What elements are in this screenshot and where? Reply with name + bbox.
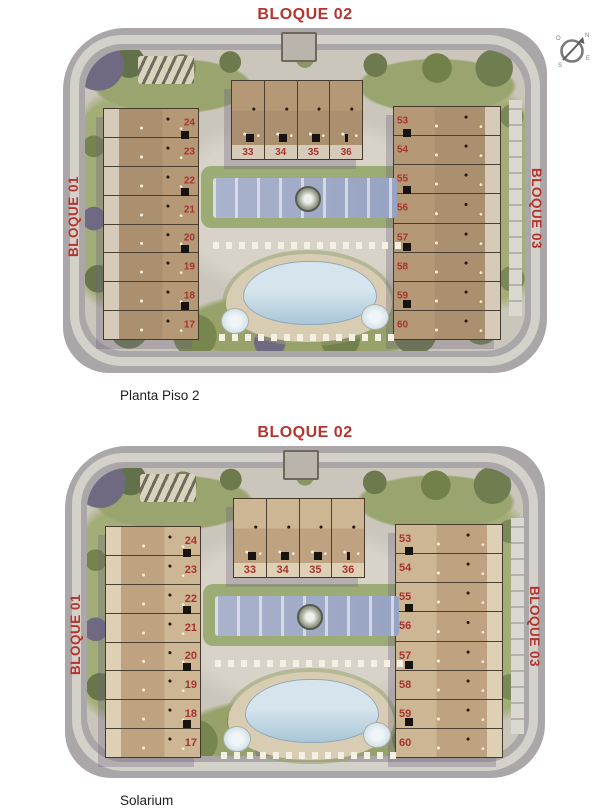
spa-pool	[221, 308, 249, 334]
unit-row: 23	[106, 556, 200, 585]
unit-row: 36	[332, 499, 364, 577]
unit-row: 22	[106, 585, 200, 614]
unit-row: 55	[396, 583, 502, 612]
bloque-03-label: BLOQUE 03	[527, 586, 542, 667]
unit-row: 54	[396, 554, 502, 583]
unit-row: 18	[104, 282, 198, 311]
unit-number: 19	[184, 262, 195, 273]
unit-row: 34	[265, 81, 298, 159]
spa-pool	[363, 722, 391, 748]
unit-number: 60	[397, 319, 408, 330]
unit-row: 57	[394, 224, 500, 253]
bloque-01-label: BLOQUE 01	[66, 176, 81, 257]
unit-row: 17	[104, 311, 198, 339]
unit-row: 56	[394, 194, 500, 223]
pergola	[140, 474, 196, 502]
svg-text:N: N	[585, 33, 589, 39]
unit-row: 59	[394, 282, 500, 311]
unit-row: 22	[104, 167, 198, 196]
unit-row: 58	[396, 671, 502, 700]
entrance-canopy	[283, 450, 319, 480]
unit-row: 19	[104, 253, 198, 282]
unit-number: 34	[275, 147, 286, 158]
unit-number: 56	[397, 203, 408, 214]
site-plan-solarium: BLOQUE 02 BLOQUE 01 BLOQUE 03 24 23 22 2…	[65, 424, 545, 778]
pool	[243, 261, 377, 325]
bloque-02-label: BLOQUE 02	[257, 424, 352, 442]
unit-row: 21	[106, 614, 200, 643]
building-bloque-03: 53 54 55 56 57 58 59 60	[395, 524, 503, 758]
parking-strip	[511, 518, 524, 734]
unit-row: 59	[396, 700, 502, 729]
compass-icon: N O E S	[549, 27, 595, 73]
unit-number: 36	[341, 147, 352, 158]
unit-row: 21	[104, 196, 198, 225]
fountain	[297, 604, 323, 630]
unit-number: 56	[399, 620, 411, 632]
unit-row: 33	[232, 81, 265, 159]
caption-planta-piso-2: Planta Piso 2	[120, 388, 200, 403]
unit-row: 24	[106, 527, 200, 556]
sun-loungers	[221, 752, 401, 759]
unit-row: 19	[106, 671, 200, 700]
unit-row: 53	[394, 107, 500, 136]
unit-row: 20	[106, 643, 200, 672]
unit-row: 20	[104, 225, 198, 254]
unit-row: 55	[394, 165, 500, 194]
building-bloque-02: 33 34 35 36	[233, 498, 365, 578]
unit-number: 18	[185, 708, 197, 720]
pergola	[138, 56, 194, 84]
unit-number: 59	[397, 290, 408, 301]
unit-number: 55	[397, 174, 408, 185]
unit-number: 53	[397, 116, 408, 127]
unit-number: 23	[185, 564, 197, 576]
unit-number: 35	[308, 147, 319, 158]
unit-number: 55	[399, 591, 411, 603]
unit-number: 24	[185, 535, 197, 547]
site-plan-planta-piso-2: BLOQUE 02 BLOQUE 01 BLOQUE 03 24 23 22 2…	[63, 6, 547, 373]
unit-row: 60	[394, 311, 500, 339]
unit-row: 24	[104, 109, 198, 138]
svg-text:E: E	[586, 56, 590, 62]
road-ring: BLOQUE 01 BLOQUE 03 24 23 22 21 20 19 18…	[65, 446, 545, 778]
unit-number: 53	[399, 533, 411, 545]
unit-row: 60	[396, 729, 502, 757]
unit-number: 33	[244, 564, 256, 576]
unit-number: 36	[342, 564, 354, 576]
sun-loungers	[215, 660, 405, 667]
bloque-02-label: BLOQUE 02	[257, 6, 352, 24]
building-bloque-02: 33 34 35 36	[231, 80, 363, 160]
unit-row: 36	[330, 81, 362, 159]
unit-row: 56	[396, 612, 502, 641]
unit-row: 34	[267, 499, 300, 577]
sun-loungers	[213, 242, 403, 249]
unit-number: 24	[184, 117, 195, 128]
unit-row: 17	[106, 729, 200, 757]
unit-row: 18	[106, 700, 200, 729]
parking-strip	[509, 100, 522, 316]
unit-number: 21	[184, 204, 195, 215]
unit-number: 20	[185, 650, 197, 662]
unit-number: 23	[184, 146, 195, 157]
unit-number: 17	[184, 320, 195, 331]
unit-number: 33	[242, 147, 253, 158]
unit-number: 22	[184, 175, 195, 186]
unit-number: 35	[309, 564, 321, 576]
unit-number: 22	[185, 593, 197, 605]
unit-row: 54	[394, 136, 500, 165]
unit-number: 19	[185, 679, 197, 691]
unit-number: 58	[397, 261, 408, 272]
unit-number: 54	[399, 562, 411, 574]
spa-pool	[223, 726, 251, 752]
entrance-canopy	[281, 32, 317, 62]
sun-loungers	[219, 334, 399, 341]
road-ring: BLOQUE 01 BLOQUE 03 24 23 22 21 20 19 18…	[63, 28, 547, 373]
unit-number: 58	[399, 679, 411, 691]
svg-text:O: O	[556, 36, 561, 42]
unit-number: 20	[184, 233, 195, 244]
building-bloque-01: 24 23 22 21 20 19 18 17	[103, 108, 199, 340]
unit-row: 58	[394, 253, 500, 282]
bloque-03-label: BLOQUE 03	[529, 168, 544, 249]
unit-row: 53	[396, 525, 502, 554]
unit-row: 35	[300, 499, 333, 577]
unit-row: 33	[234, 499, 267, 577]
unit-row: 35	[298, 81, 331, 159]
unit-number: 59	[399, 708, 411, 720]
bloque-01-label: BLOQUE 01	[68, 594, 83, 675]
unit-number: 21	[185, 622, 197, 634]
unit-row: 57	[396, 642, 502, 671]
unit-row: 23	[104, 138, 198, 167]
fountain	[295, 186, 321, 212]
unit-number: 34	[277, 564, 289, 576]
spa-pool	[361, 304, 389, 330]
pool	[245, 679, 379, 743]
building-bloque-03: 53 54 55 56 57 58 59 60	[393, 106, 501, 340]
unit-number: 54	[397, 145, 408, 156]
unit-number: 60	[399, 737, 411, 749]
unit-number: 18	[184, 291, 195, 302]
building-bloque-01: 24 23 22 21 20 19 18 17	[105, 526, 201, 758]
brochure-page: BLOQUE 02 BLOQUE 01 BLOQUE 03 24 23 22 2…	[0, 0, 606, 811]
unit-number: 17	[185, 737, 197, 749]
svg-text:S: S	[558, 63, 562, 69]
caption-solarium: Solarium	[120, 793, 173, 808]
